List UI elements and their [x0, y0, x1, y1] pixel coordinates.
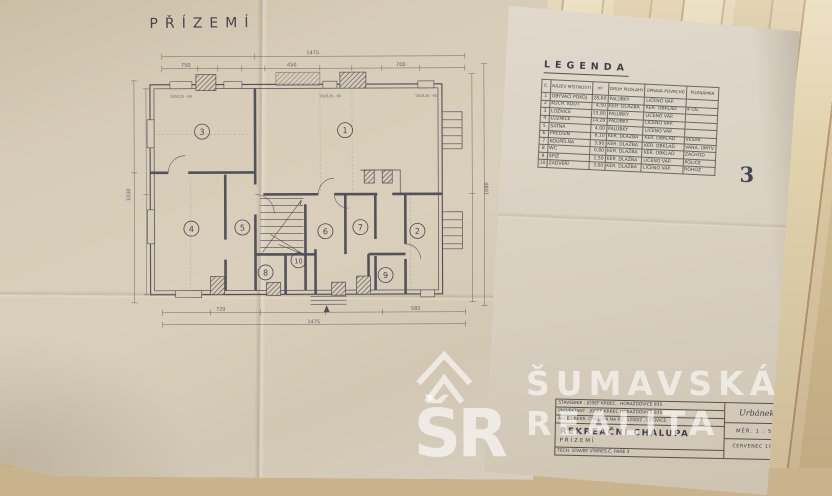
- dim-left-total: 1030: [126, 189, 132, 202]
- legend-fold-crease: [494, 211, 792, 230]
- dim-top-c: 700: [396, 62, 406, 68]
- dim-top-a: 750: [181, 63, 191, 69]
- windows: [147, 81, 435, 298]
- dim-top-b: 450: [287, 62, 297, 68]
- room-number-1: 1: [343, 126, 348, 135]
- room-number-8: 8: [263, 268, 268, 277]
- staircase: [260, 198, 303, 254]
- room-number-10: 10: [294, 257, 302, 265]
- room-number-5: 5: [240, 224, 245, 233]
- dim-bottom-total: 1475: [307, 319, 320, 325]
- dim-right-total: 1080: [484, 182, 490, 195]
- title-block: STAVEBNÍK : JOSEF KRBEC , HORAŽĎOVICE 83…: [554, 399, 789, 461]
- room-number-3: 3: [200, 128, 205, 137]
- reference-lines: [154, 88, 411, 289]
- legend-column-header: m²: [592, 82, 609, 96]
- dim-bottom-b: 585: [411, 306, 421, 312]
- room-number-7: 7: [358, 223, 363, 232]
- entry-arrow: [324, 305, 330, 312]
- dim-bottom-a: 720: [216, 307, 226, 313]
- dimension-labels: 1475 750 450 700 1030 1080 1475 720 585: [126, 50, 491, 326]
- floorplan-sheet: PŘÍZEMÍ 1475 750 450 700 1030 1080: [0, 0, 548, 480]
- window-labels: 150/120 - 90 150/120 - 90 150/120 - 90: [170, 94, 437, 99]
- legend-sheet: LEGENDA Č.NÁZEV MÍSTNOSTIm²DRUH PODLAHYÚ…: [482, 6, 800, 496]
- room-number-2: 2: [415, 227, 420, 236]
- page-number: 3: [739, 162, 754, 187]
- legend-title: LEGENDA: [544, 59, 630, 77]
- floorplan-title: PŘÍZEMÍ: [149, 15, 255, 32]
- svg-text:150/120 - 90: 150/120 - 90: [319, 94, 341, 98]
- room-number-4: 4: [189, 225, 194, 234]
- dim-top-total: 1475: [306, 50, 319, 56]
- floorplan-drawing: 1475 750 450 700 1030 1080 1475 720 585: [120, 44, 497, 345]
- entry-steps: [311, 296, 347, 304]
- room-number-6: 6: [323, 227, 328, 236]
- svg-text:150/120 - 90: 150/120 - 90: [415, 94, 437, 98]
- legend-table-body: 1OBÝVACÍ POKOJ28,60PALUBKYLÍČENO VÁP.2KU…: [538, 92, 719, 175]
- room-number-9: 9: [383, 271, 388, 280]
- svg-text:150/120 - 90: 150/120 - 90: [170, 95, 192, 99]
- legend-table: Č.NÁZEV MÍSTNOSTIm²DRUH PODLAHYÚPRAVA PO…: [537, 79, 719, 176]
